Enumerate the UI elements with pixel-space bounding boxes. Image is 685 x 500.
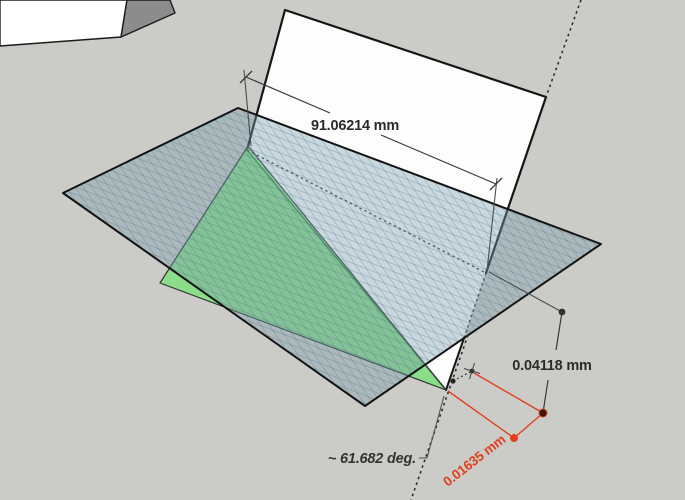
edge-length-label[interactable]: 91.06214 mm [311,118,399,134]
cad-viewport[interactable]: 91.06214 mm 0.04118 mm 0.01635 mm ~ 61.6… [0,0,685,500]
guide-point-dot[interactable] [450,378,455,383]
red-endpoint-dot[interactable] [510,434,518,442]
offset-distance-label[interactable]: 0.04118 mm [512,358,591,374]
model-scene[interactable]: 91.06214 mm 0.04118 mm 0.01635 mm ~ 61.6… [0,0,685,500]
selected-endpoint-dot[interactable] [539,409,547,417]
fold-angle-label[interactable]: ~ 61.682 deg. [328,451,416,467]
